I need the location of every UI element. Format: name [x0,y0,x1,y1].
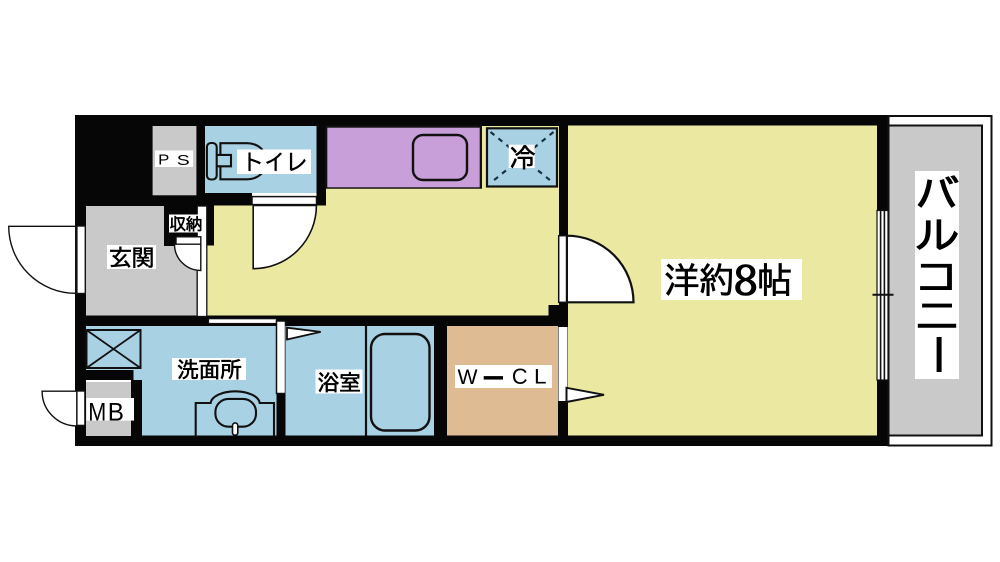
svg-text:L: L [534,366,547,389]
svg-text:W: W [458,366,478,389]
svg-text:S: S [177,153,190,169]
svg-text:B: B [108,398,124,426]
svg-text:C: C [512,364,528,389]
svg-text:P: P [158,153,169,169]
svg-text:M: M [88,398,106,426]
